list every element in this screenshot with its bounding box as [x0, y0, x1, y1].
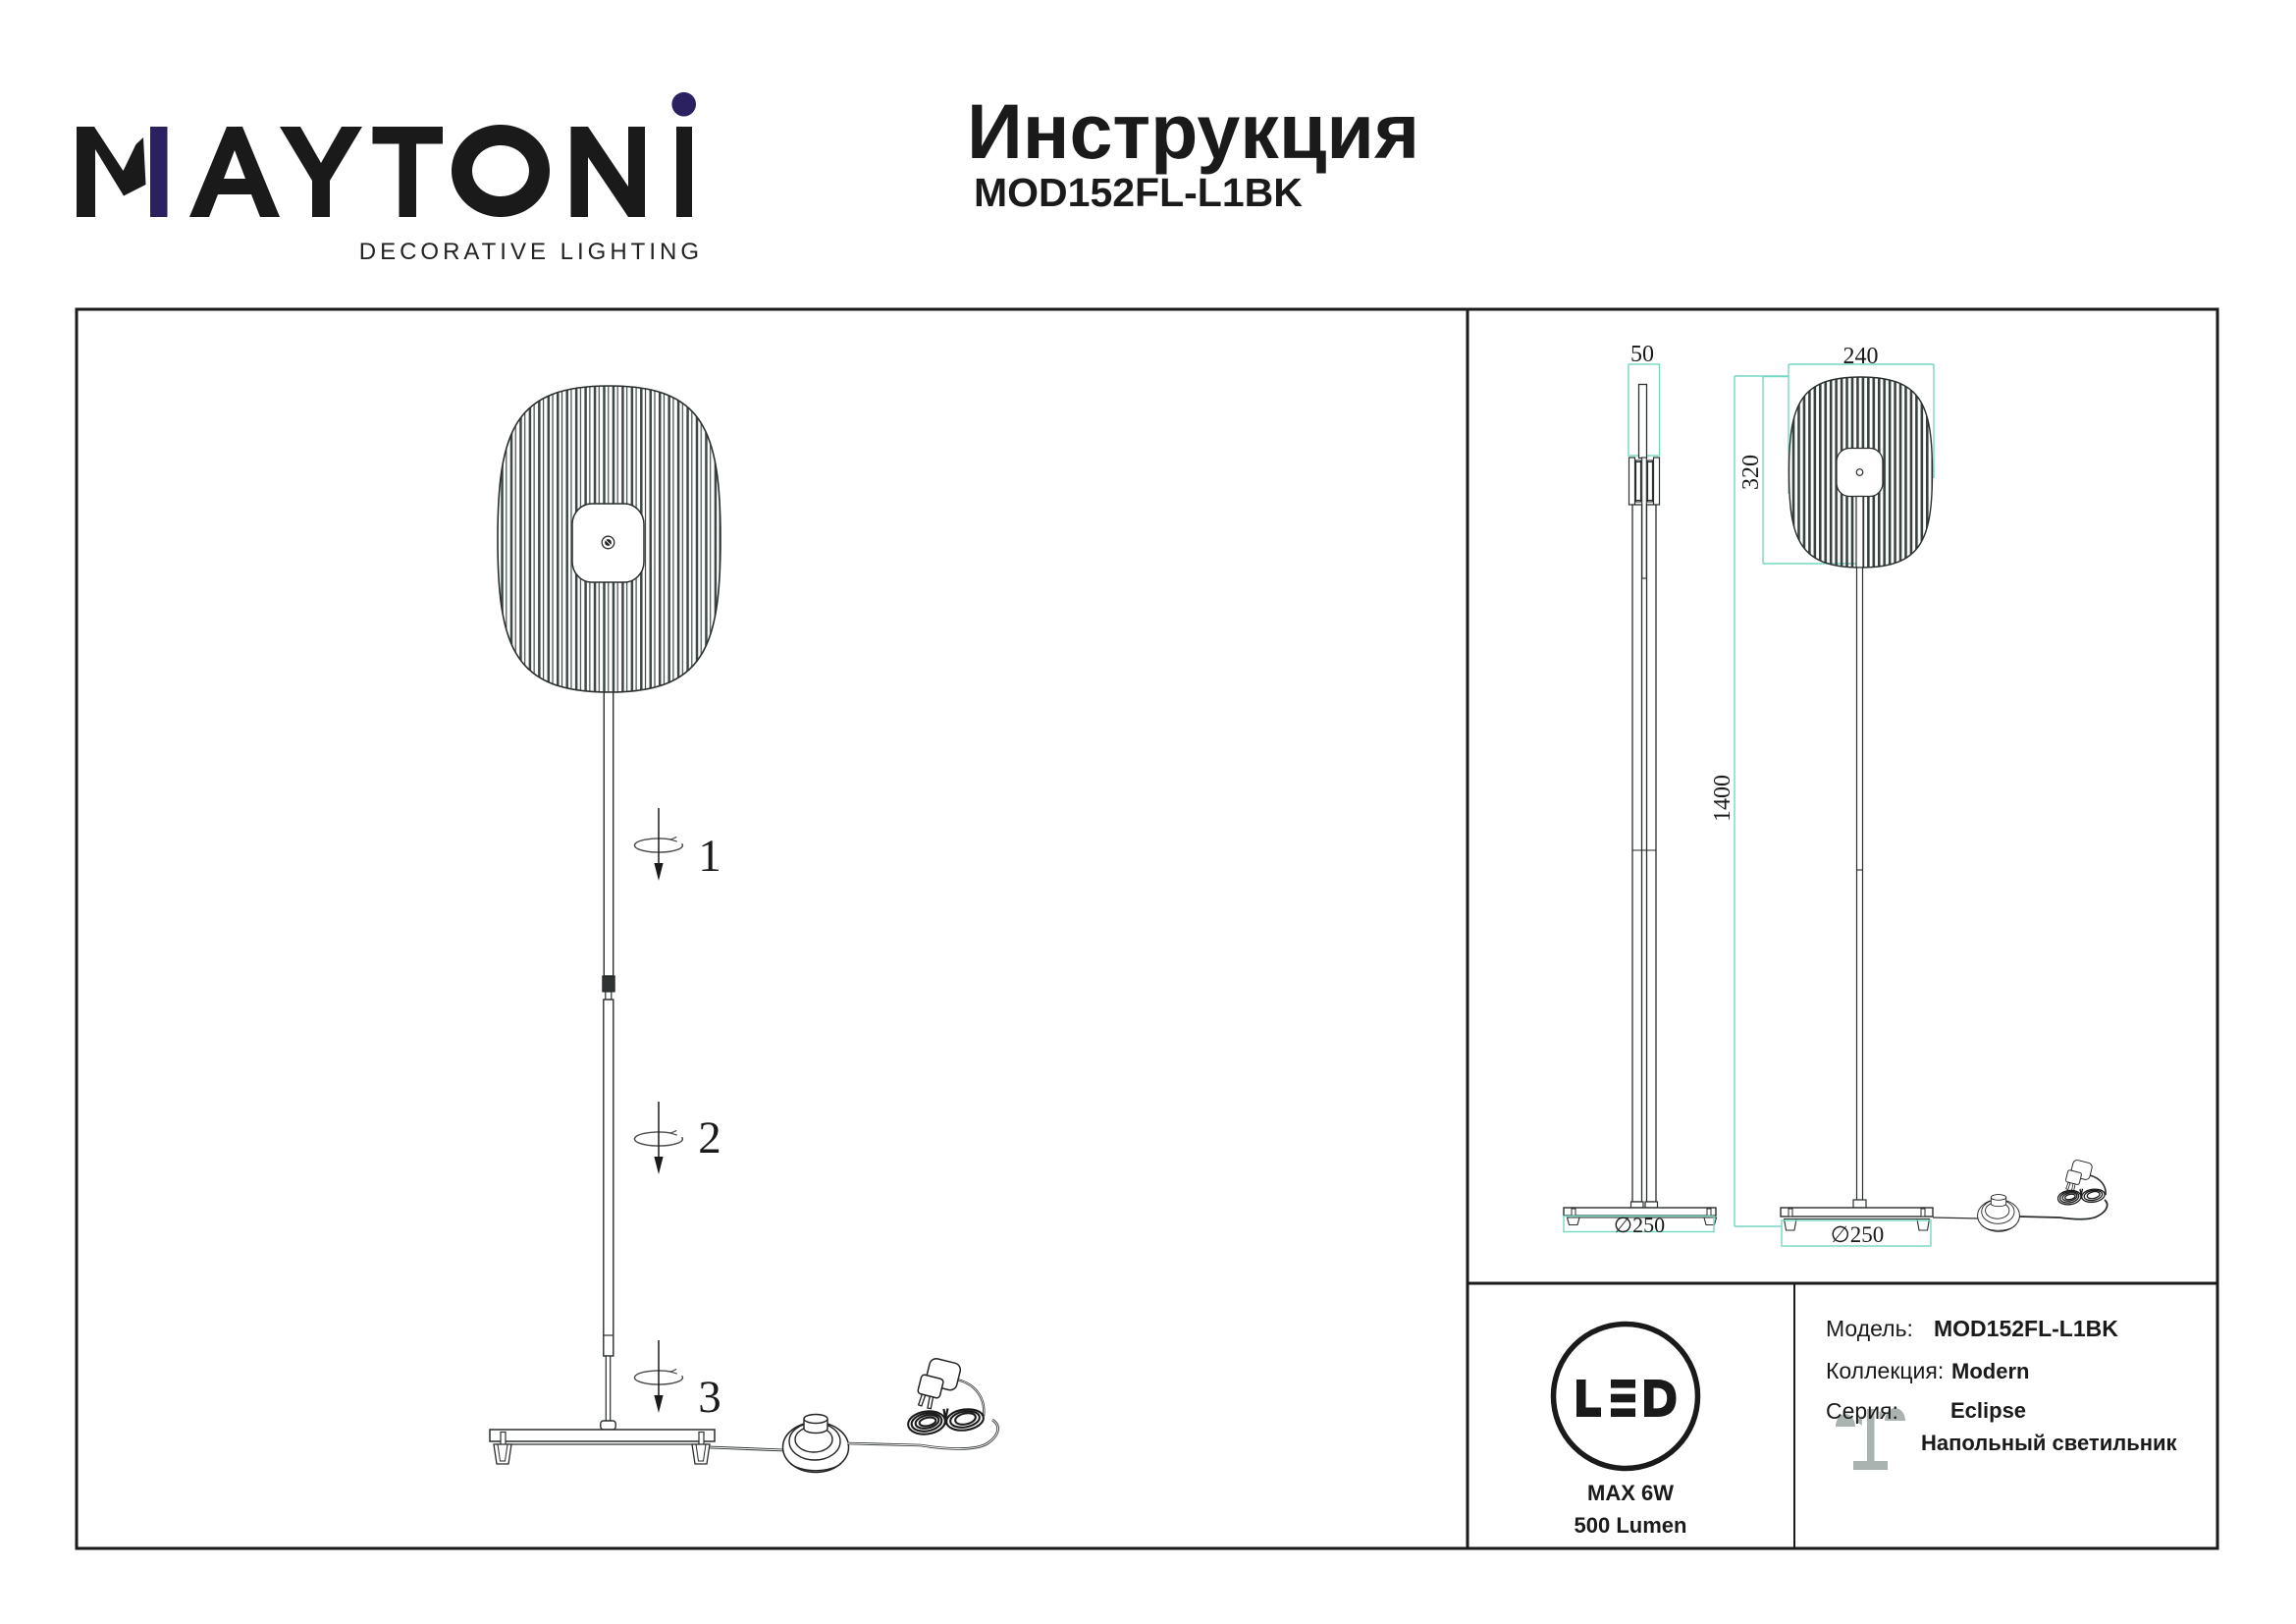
svg-text:500 Lumen: 500 Lumen	[1575, 1513, 1687, 1538]
svg-text:∅250: ∅250	[1614, 1213, 1665, 1237]
svg-text:∅250: ∅250	[1831, 1222, 1885, 1247]
svg-text:MOD152FL-L1BK: MOD152FL-L1BK	[1934, 1316, 2118, 1341]
svg-text:Инструкция: Инструкция	[967, 87, 1419, 175]
svg-text:50: 50	[1630, 342, 1654, 367]
svg-text:Серия:: Серия:	[1826, 1398, 1898, 1424]
svg-text:Коллекция:: Коллекция:	[1826, 1358, 1944, 1383]
svg-text:240: 240	[1843, 344, 1879, 369]
svg-text:Напольный светильник: Напольный светильник	[1921, 1431, 2178, 1455]
svg-text:MAX 6W: MAX 6W	[1587, 1481, 1674, 1505]
svg-text:Eclipse: Eclipse	[1950, 1398, 2026, 1423]
svg-text:MOD152FL-L1BK: MOD152FL-L1BK	[974, 170, 1303, 215]
svg-text:1400: 1400	[1710, 775, 1735, 822]
svg-text:2: 2	[698, 1112, 721, 1164]
svg-text:3: 3	[698, 1372, 721, 1423]
svg-text:320: 320	[1738, 455, 1764, 490]
svg-text:Modern: Modern	[1951, 1359, 2029, 1383]
svg-text:DECORATIVE LIGHTING: DECORATIVE LIGHTING	[359, 239, 703, 265]
svg-text:1: 1	[698, 831, 721, 882]
svg-text:Модель:: Модель:	[1826, 1316, 1913, 1341]
